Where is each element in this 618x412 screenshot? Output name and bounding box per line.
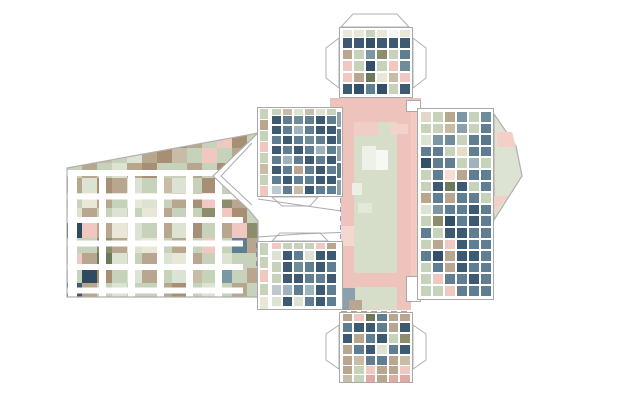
lower-facade-windows-cell	[305, 251, 314, 261]
upper-facade-windows-cell	[272, 156, 281, 164]
right-facade-windows-cell	[457, 240, 467, 250]
bottom-block-windows-cell	[343, 345, 353, 354]
lower-facade-band-cell	[294, 243, 303, 249]
pointed-flap-pink-bottom	[494, 196, 508, 214]
upper-facade-windows-cell	[283, 186, 292, 194]
upper-facade-windows-cell	[283, 116, 292, 124]
lower-facade-windows-cell	[316, 297, 325, 307]
right-facade-windows-cell	[481, 286, 491, 296]
right-facade-windows-cell	[421, 170, 431, 180]
lower-facade-windows-cell	[272, 274, 281, 284]
roof-bottom-cell-tan	[349, 300, 362, 310]
top-block-band-cell	[389, 30, 399, 37]
lower-facade-windows-cell	[305, 297, 314, 307]
bottom-block-band-3-cell	[366, 375, 376, 382]
glue-tab-lower-facade	[272, 233, 328, 241]
side-flap-top-right	[413, 38, 426, 88]
roof-mosaic-cell	[202, 148, 217, 163]
lower-facade-windows-cell	[327, 285, 336, 295]
upper-facade-windows-cell	[294, 176, 303, 184]
upper-facade-left-band-cell	[260, 153, 268, 163]
top-block-windows-cell	[377, 38, 387, 48]
upper-facade-windows-cell	[305, 116, 314, 124]
right-facade-windows-cell	[445, 158, 455, 168]
right-facade-windows-cell	[457, 205, 467, 215]
right-facade-windows-cell	[481, 124, 491, 134]
side-flap-top-left	[326, 38, 339, 88]
upper-facade-left-band-cell	[260, 131, 268, 141]
right-facade-windows-cell	[433, 274, 443, 284]
upper-facade-band-cell	[316, 109, 325, 115]
right-facade-windows-cell	[421, 216, 431, 226]
upper-facade-windows-cell	[305, 156, 314, 164]
lower-facade-left-band-cell	[260, 284, 268, 296]
lower-facade-left-band-cell	[260, 257, 268, 269]
right-facade-windows-cell	[469, 274, 479, 284]
right-facade-windows-cell	[457, 124, 467, 134]
lower-facade-windows-cell	[294, 297, 303, 307]
lower-facade-windows-cell	[316, 262, 325, 272]
upper-facade-windows-cell	[305, 166, 314, 174]
top-block-band-cell	[343, 30, 353, 37]
right-facade-windows-cell	[421, 240, 431, 250]
right-facade-windows-cell	[421, 112, 431, 122]
roof-patch-light-2	[376, 150, 388, 170]
right-facade-windows-cell	[481, 251, 491, 261]
upper-facade-right-band-cell	[337, 112, 342, 127]
top-block-band-cell	[377, 30, 387, 37]
bottom-block-windows-cell	[354, 323, 364, 332]
upper-facade-band-cell	[272, 109, 281, 115]
right-facade-windows-cell	[421, 193, 431, 203]
right-facade-windows-cell	[445, 228, 455, 238]
right-facade-windows-cell	[457, 158, 467, 168]
roof-mosaic-cell	[202, 133, 217, 148]
roof-patch-light-4	[358, 203, 372, 213]
right-facade-windows-cell	[457, 147, 467, 157]
right-facade-windows-cell	[421, 274, 431, 284]
lower-facade-band-cell	[283, 243, 292, 249]
upper-facade-windows-cell	[316, 126, 325, 134]
top-block-windows-cell	[354, 84, 364, 94]
bottom-block-windows-cell	[377, 345, 387, 354]
lower-facade-windows-cell	[283, 285, 292, 295]
top-block-band-cell	[400, 30, 410, 37]
lower-facade-windows-cell	[283, 262, 292, 272]
right-facade-windows-cell	[433, 182, 443, 192]
top-block-windows-cell	[377, 84, 387, 94]
right-facade-windows-cell	[469, 286, 479, 296]
lower-facade-windows-cell	[272, 262, 281, 272]
right-facade-windows-cell	[457, 274, 467, 284]
top-block-windows-cell	[389, 50, 399, 60]
bottom-block-windows-cell	[377, 323, 387, 332]
right-facade-windows-cell	[481, 158, 491, 168]
roof-patch-light-3	[352, 183, 362, 195]
roof-mosaic-cell	[232, 178, 247, 193]
right-facade-windows-cell	[469, 182, 479, 192]
upper-facade-windows-cell	[294, 146, 303, 154]
side-flap-bottom-right	[413, 325, 426, 369]
bottom-block-windows-cell	[343, 323, 353, 332]
right-facade-windows-cell	[469, 193, 479, 203]
top-block-windows-cell	[389, 61, 399, 71]
roof-mosaic-cell	[217, 148, 232, 163]
lower-facade-windows-cell	[294, 285, 303, 295]
bottom-block-windows-cell	[377, 356, 387, 365]
right-facade-windows-cell	[433, 263, 443, 273]
right-facade-windows-cell	[469, 251, 479, 261]
lower-facade-windows-cell	[283, 274, 292, 284]
right-facade-windows-cell	[421, 228, 431, 238]
right-facade-windows-cell	[445, 274, 455, 284]
pointed-flap-pink-top	[497, 132, 516, 147]
upper-facade-windows-cell	[316, 136, 325, 144]
upper-facade-windows-cell	[316, 186, 325, 194]
glue-tab-upper-facade	[272, 197, 318, 206]
bottom-block-windows-cell	[343, 334, 353, 343]
roof-mosaic-cell	[217, 133, 232, 148]
right-facade-windows-cell	[433, 124, 443, 134]
lower-facade-windows-cell	[272, 297, 281, 307]
bottom-block-windows-cell	[389, 323, 399, 332]
bottom-block-band-3-cell	[400, 375, 410, 382]
upper-facade-windows-cell	[305, 146, 314, 154]
upper-facade-windows-cell	[316, 166, 325, 174]
bottom-block-windows-cell	[366, 334, 376, 343]
roof-panel-mosaic	[67, 133, 262, 298]
right-facade-windows-cell	[481, 205, 491, 215]
right-facade-windows-cell	[445, 240, 455, 250]
bottom-block-band-cell	[400, 314, 410, 321]
roof-mosaic-cell	[157, 148, 172, 163]
bottom-block-band-3-cell	[343, 375, 353, 382]
upper-facade-windows-cell	[327, 116, 336, 124]
fold-tab-bottom	[341, 273, 411, 287]
bottom-block-windows-cell	[400, 356, 410, 365]
right-facade-windows-cell	[481, 228, 491, 238]
roof-patch-pink-1	[354, 122, 378, 136]
right-facade-windows-cell	[481, 240, 491, 250]
top-block-windows-cell	[377, 50, 387, 60]
top-block-windows-cell	[366, 50, 376, 60]
roof-mosaic-cell	[82, 133, 97, 148]
lower-facade-band-cell	[327, 243, 336, 249]
upper-facade-windows-cell	[283, 166, 292, 174]
right-facade-windows-cell	[481, 170, 491, 180]
right-facade-windows-cell	[457, 286, 467, 296]
roof-mosaic-cell	[142, 133, 157, 148]
right-facade-windows-cell	[469, 205, 479, 215]
right-facade-windows-cell	[469, 124, 479, 134]
right-facade-windows-cell	[469, 263, 479, 273]
upper-facade-windows-cell	[316, 146, 325, 154]
upper-facade-windows-cell	[327, 186, 336, 194]
roof-mosaic-cell	[172, 133, 187, 148]
lower-facade-windows-cell	[294, 274, 303, 284]
right-facade-windows-cell	[445, 182, 455, 192]
roof-mosaic-cell	[112, 148, 127, 163]
upper-facade-windows-cell	[305, 126, 314, 134]
upper-facade-windows-cell	[272, 166, 281, 174]
right-facade-windows-cell	[433, 216, 443, 226]
roof-mosaic-cell	[232, 163, 247, 178]
top-block-windows-cell	[400, 38, 410, 48]
right-facade-windows-cell	[481, 112, 491, 122]
bottom-block-band-cell	[377, 314, 387, 321]
lower-facade-band-cell	[272, 243, 281, 249]
upper-facade-left-band-cell	[260, 109, 268, 119]
right-facade-windows-cell	[421, 205, 431, 215]
roof-mosaic-cell	[217, 163, 232, 178]
upper-facade-windows-cell	[327, 156, 336, 164]
upper-facade-windows-cell	[272, 136, 281, 144]
upper-facade-left-band-cell	[260, 120, 268, 130]
right-facade-windows-cell	[469, 147, 479, 157]
top-block-windows-cell	[400, 84, 410, 94]
right-facade-windows-cell	[421, 124, 431, 134]
right-facade-windows-cell	[457, 135, 467, 145]
lower-facade-band-cell	[305, 243, 314, 249]
roof-mosaic-cell	[67, 133, 82, 148]
roof-mosaic-cell	[97, 148, 112, 163]
upper-facade-right-band-cell	[337, 129, 342, 144]
roof-patch-light-1	[362, 146, 376, 170]
roof-mosaic-cell	[127, 148, 142, 163]
upper-facade-windows-cell	[294, 116, 303, 124]
right-facade-windows-cell	[421, 182, 431, 192]
right-facade-windows-cell	[433, 147, 443, 157]
right-facade-windows-cell	[469, 135, 479, 145]
upper-facade-windows-cell	[327, 146, 336, 154]
lower-facade-windows-cell	[283, 297, 292, 307]
bottom-block-windows-cell	[366, 356, 376, 365]
right-facade-windows-cell	[433, 170, 443, 180]
side-flap-bottom-left	[326, 325, 339, 369]
upper-facade-windows-cell	[327, 176, 336, 184]
lower-facade-left-band-cell	[260, 297, 268, 309]
right-facade-windows-cell	[445, 170, 455, 180]
bottom-block-windows-cell	[400, 345, 410, 354]
lower-facade-band-cell	[316, 243, 325, 249]
upper-facade-windows-cell	[305, 186, 314, 194]
top-block-windows-cell	[343, 84, 353, 94]
bottom-block-band-3-cell	[377, 375, 387, 382]
right-facade-windows-cell	[445, 147, 455, 157]
top-block-windows-cell	[366, 61, 376, 71]
right-facade-windows-cell	[445, 286, 455, 296]
right-facade-windows-cell	[421, 135, 431, 145]
upper-facade-band-cell	[283, 109, 292, 115]
bottom-block-band-2-cell	[354, 366, 364, 374]
upper-facade-band-cell	[327, 109, 336, 115]
lower-facade-windows-cell	[305, 285, 314, 295]
right-facade-windows-cell	[481, 147, 491, 157]
lower-facade-windows-cell	[327, 262, 336, 272]
right-facade-windows-cell	[421, 158, 431, 168]
right-facade-windows-cell	[457, 263, 467, 273]
lower-facade-windows-cell	[327, 251, 336, 261]
right-facade-windows-cell	[469, 216, 479, 226]
right-facade-windows-cell	[433, 158, 443, 168]
bottom-block-band-3-cell	[389, 375, 399, 382]
upper-facade-windows-cell	[283, 136, 292, 144]
upper-facade-windows-cell	[283, 126, 292, 134]
top-block-windows-cell	[343, 38, 353, 48]
glue-tab-top	[341, 14, 409, 27]
upper-facade-windows-cell	[316, 156, 325, 164]
bottom-block-windows-cell	[400, 334, 410, 343]
top-block-windows-cell	[389, 73, 399, 83]
lower-facade-windows-cell	[316, 251, 325, 261]
right-facade-windows-cell	[481, 216, 491, 226]
upper-facade-right-band-cell	[337, 146, 342, 161]
roof-mosaic-cell	[232, 148, 247, 163]
pointed-flap-right	[494, 114, 522, 220]
lower-facade-left-band-cell	[260, 270, 268, 282]
top-block-windows-cell	[377, 73, 387, 83]
right-facade-windows-cell	[433, 240, 443, 250]
bottom-block-windows-cell	[354, 334, 364, 343]
right-facade-windows-cell	[445, 251, 455, 261]
right-facade-windows-cell	[469, 112, 479, 122]
right-facade-windows-cell	[457, 228, 467, 238]
bottom-block-windows-cell	[377, 334, 387, 343]
upper-facade-windows-cell	[327, 126, 336, 134]
upper-facade-windows-cell	[294, 186, 303, 194]
upper-facade-windows-cell	[305, 176, 314, 184]
bottom-block-windows-cell	[366, 345, 376, 354]
upper-facade-windows-cell	[327, 166, 336, 174]
right-facade-windows-cell	[433, 205, 443, 215]
top-block-windows-cell	[389, 84, 399, 94]
right-facade-windows-cell	[445, 193, 455, 203]
lower-facade-windows-cell	[327, 274, 336, 284]
lower-facade-windows-cell	[294, 251, 303, 261]
upper-facade-windows-cell	[316, 176, 325, 184]
right-facade-windows-cell	[469, 228, 479, 238]
right-facade-windows-cell	[481, 193, 491, 203]
right-facade-windows-cell	[469, 158, 479, 168]
upper-facade-windows-cell	[272, 126, 281, 134]
right-facade-windows-cell	[481, 274, 491, 284]
right-facade-windows-cell	[481, 182, 491, 192]
lower-facade-windows-cell	[316, 274, 325, 284]
upper-facade-windows-cell	[316, 116, 325, 124]
bottom-block-windows-cell	[389, 356, 399, 365]
lower-facade-windows-cell	[283, 251, 292, 261]
upper-facade-windows-cell	[272, 186, 281, 194]
lower-facade-windows-cell	[305, 274, 314, 284]
upper-facade-band-cell	[294, 109, 303, 115]
lower-facade-windows-cell	[272, 285, 281, 295]
roof-mosaic-cell	[142, 148, 157, 163]
right-facade-windows-cell	[421, 286, 431, 296]
top-block-windows-cell	[343, 50, 353, 60]
top-block-windows-cell	[377, 61, 387, 71]
top-block-windows-cell	[354, 73, 364, 83]
right-facade-windows-cell	[433, 251, 443, 261]
roof-mosaic-cell	[232, 133, 247, 148]
lower-facade-windows-cell	[294, 262, 303, 272]
upper-facade-windows-cell	[294, 136, 303, 144]
roof-mosaic-cell	[67, 148, 82, 163]
roof-mosaic-cell	[247, 208, 262, 223]
right-facade-windows-cell	[457, 216, 467, 226]
upper-facade-right-band-cell	[337, 180, 342, 195]
right-facade-windows-cell	[445, 205, 455, 215]
roof-mosaic-cell	[247, 223, 262, 238]
roof-mosaic-cell	[157, 133, 172, 148]
top-block-band-cell	[354, 30, 364, 37]
bottom-block-band-cell	[389, 314, 399, 321]
right-facade-windows-cell	[481, 263, 491, 273]
top-block-band-cell	[366, 30, 376, 37]
lower-facade-windows-cell	[305, 262, 314, 272]
lower-facade-windows-cell	[316, 285, 325, 295]
bottom-block-band-2-cell	[400, 366, 410, 374]
right-facade-windows-cell	[469, 240, 479, 250]
upper-facade-windows-cell	[272, 176, 281, 184]
upper-facade-band-cell	[305, 109, 314, 115]
roof-mosaic-cell	[172, 148, 187, 163]
right-facade-windows-cell	[433, 135, 443, 145]
upper-facade-windows-cell	[327, 136, 336, 144]
top-block-windows-cell	[366, 38, 376, 48]
roof-mosaic-cell	[187, 133, 202, 148]
top-block-windows-cell	[400, 50, 410, 60]
right-facade-windows-cell	[421, 251, 431, 261]
upper-facade-windows-cell	[283, 156, 292, 164]
top-block-windows-cell	[366, 73, 376, 83]
top-block-windows-cell	[389, 38, 399, 48]
bottom-block-band-2-cell	[377, 366, 387, 374]
right-facade-windows-cell	[457, 251, 467, 261]
roof-mosaic-cell	[112, 133, 127, 148]
right-facade-windows-cell	[445, 216, 455, 226]
bottom-block-windows-cell	[366, 323, 376, 332]
bottom-block-band-2-cell	[366, 366, 376, 374]
top-block-windows-cell	[354, 61, 364, 71]
right-facade-windows-cell	[457, 182, 467, 192]
bottom-block-windows-cell	[400, 323, 410, 332]
right-facade-windows-cell	[457, 112, 467, 122]
upper-facade-windows-cell	[294, 156, 303, 164]
lower-facade-windows-cell	[272, 251, 281, 261]
top-block-windows-cell	[343, 61, 353, 71]
bottom-block-windows-cell	[389, 334, 399, 343]
bottom-block-band-cell	[366, 314, 376, 321]
bottom-block-windows-cell	[354, 356, 364, 365]
right-facade-windows-cell	[433, 286, 443, 296]
top-block-windows-cell	[354, 38, 364, 48]
right-facade-windows-cell	[433, 193, 443, 203]
bottom-block-windows-cell	[389, 345, 399, 354]
right-facade-windows-cell	[445, 135, 455, 145]
upper-facade-right-band-cell	[337, 163, 342, 178]
upper-facade-windows-cell	[272, 116, 281, 124]
upper-facade-windows-cell	[294, 166, 303, 174]
right-facade-windows-cell	[445, 112, 455, 122]
right-facade-windows-cell	[457, 193, 467, 203]
papercraft-building-net	[0, 0, 618, 412]
roof-mosaic-cell	[97, 133, 112, 148]
bottom-block-band-3-cell	[354, 375, 364, 382]
right-facade-windows-cell	[445, 263, 455, 273]
bottom-block-band-2-cell	[343, 366, 353, 374]
upper-facade-left-band-cell	[260, 164, 268, 174]
right-facade-windows-cell	[481, 135, 491, 145]
